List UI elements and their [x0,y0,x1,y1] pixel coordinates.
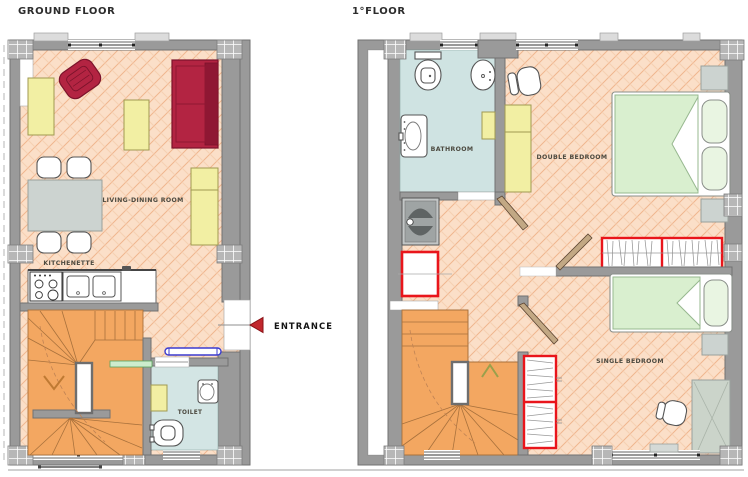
kitchenette-label: KITCHENETTE [43,260,94,267]
wardrobe-yellow [505,105,531,192]
staircase [28,310,143,455]
single-bedroom-label: SINGLE BEDROOM [596,358,664,365]
dining-table [28,180,102,231]
side-table [191,168,218,245]
single-bed [610,274,732,332]
nightstand [701,66,728,90]
entrance-label: ENTRANCE [274,321,333,331]
window-shelf [650,444,678,452]
door-sill [110,361,152,367]
kitchen-sink [63,272,121,301]
double-bed [612,92,730,196]
faucet [122,266,131,271]
entrance-arrow-icon [250,318,263,333]
kitchenette-counter [28,266,156,303]
toilet-fixture [150,420,183,446]
toilet-label: TOILET [178,410,202,416]
toilet-sink [198,380,218,403]
living-dining-label: LIVING-DINING ROOM [102,197,183,204]
first-floor-plan: 1°FLOOR [352,6,744,465]
bidet-fixture [471,60,495,90]
bathroom-label: BATHROOM [431,146,474,153]
ground-floor-title: GROUND FLOOR [18,6,115,17]
sofa [172,60,218,148]
radiator [165,348,221,355]
bathroom-shelf [482,112,495,139]
coffee-table [124,100,149,150]
shelving-red [524,356,562,448]
entrance: ENTRANCE [218,300,333,350]
nightstand [702,334,728,355]
floor-plan-canvas: GROUND FLOOR [0,0,748,477]
bathroom-door-opening [458,192,495,200]
double-bedroom-door-opening [520,267,556,276]
desk [692,380,730,453]
ground-floor-plan: GROUND FLOOR [4,6,333,469]
landing-threshold [390,301,438,310]
stair-newel [76,363,92,413]
toilet-shelf [151,385,167,411]
sideboard [28,78,54,135]
toilet-fixture [415,52,441,90]
wall-shaft [368,50,388,455]
bathroom-sink [399,115,427,157]
hanging-wardrobe [602,238,722,268]
double-bedroom-label: DOUBLE BEDROOM [537,154,608,161]
floor-plan-drawing: GROUND FLOOR [0,0,748,477]
right-wall [222,50,240,302]
bathroom: BATHROOM [399,50,505,205]
first-floor-title: 1°FLOOR [352,6,406,17]
stair-newel [452,362,468,404]
stove [30,272,62,301]
toilet-side-wall [218,352,240,455]
shower [402,198,439,245]
